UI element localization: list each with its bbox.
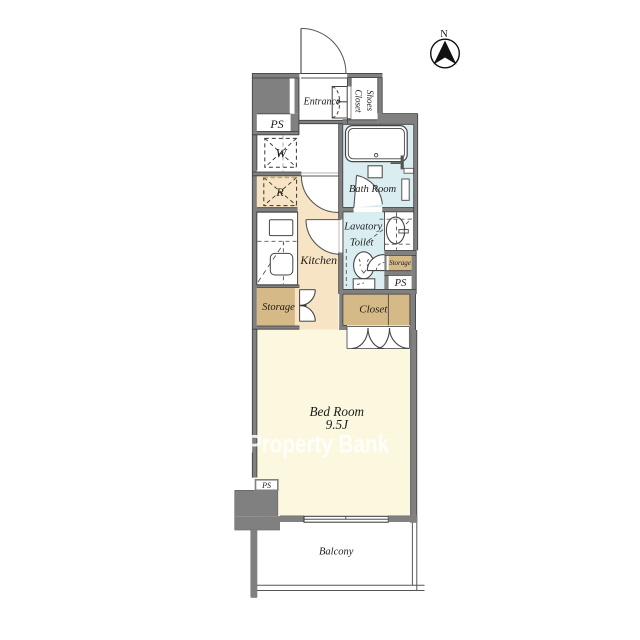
svg-text:Kitchen: Kitchen: [299, 253, 337, 267]
svg-text:N: N: [440, 29, 448, 40]
svg-text:Balcony: Balcony: [319, 547, 354, 558]
svg-text:Entrance: Entrance: [303, 96, 341, 107]
svg-text:PS: PS: [261, 481, 271, 490]
svg-text:PS: PS: [394, 278, 407, 289]
svg-text:W: W: [276, 146, 288, 161]
svg-text:Closet: Closet: [359, 303, 388, 315]
svg-text:R: R: [275, 185, 284, 199]
svg-text:Lavatory: Lavatory: [343, 222, 382, 233]
svg-text:Closet: Closet: [354, 89, 364, 113]
svg-text:Storage: Storage: [389, 259, 411, 267]
svg-text:Toilet: Toilet: [350, 238, 375, 249]
svg-text:Property Bank: Property Bank: [248, 431, 389, 459]
svg-text:Bath Room: Bath Room: [349, 184, 397, 195]
svg-text:Storage: Storage: [262, 302, 295, 313]
svg-text:PS: PS: [269, 117, 283, 131]
svg-text:Shoes: Shoes: [365, 90, 375, 111]
